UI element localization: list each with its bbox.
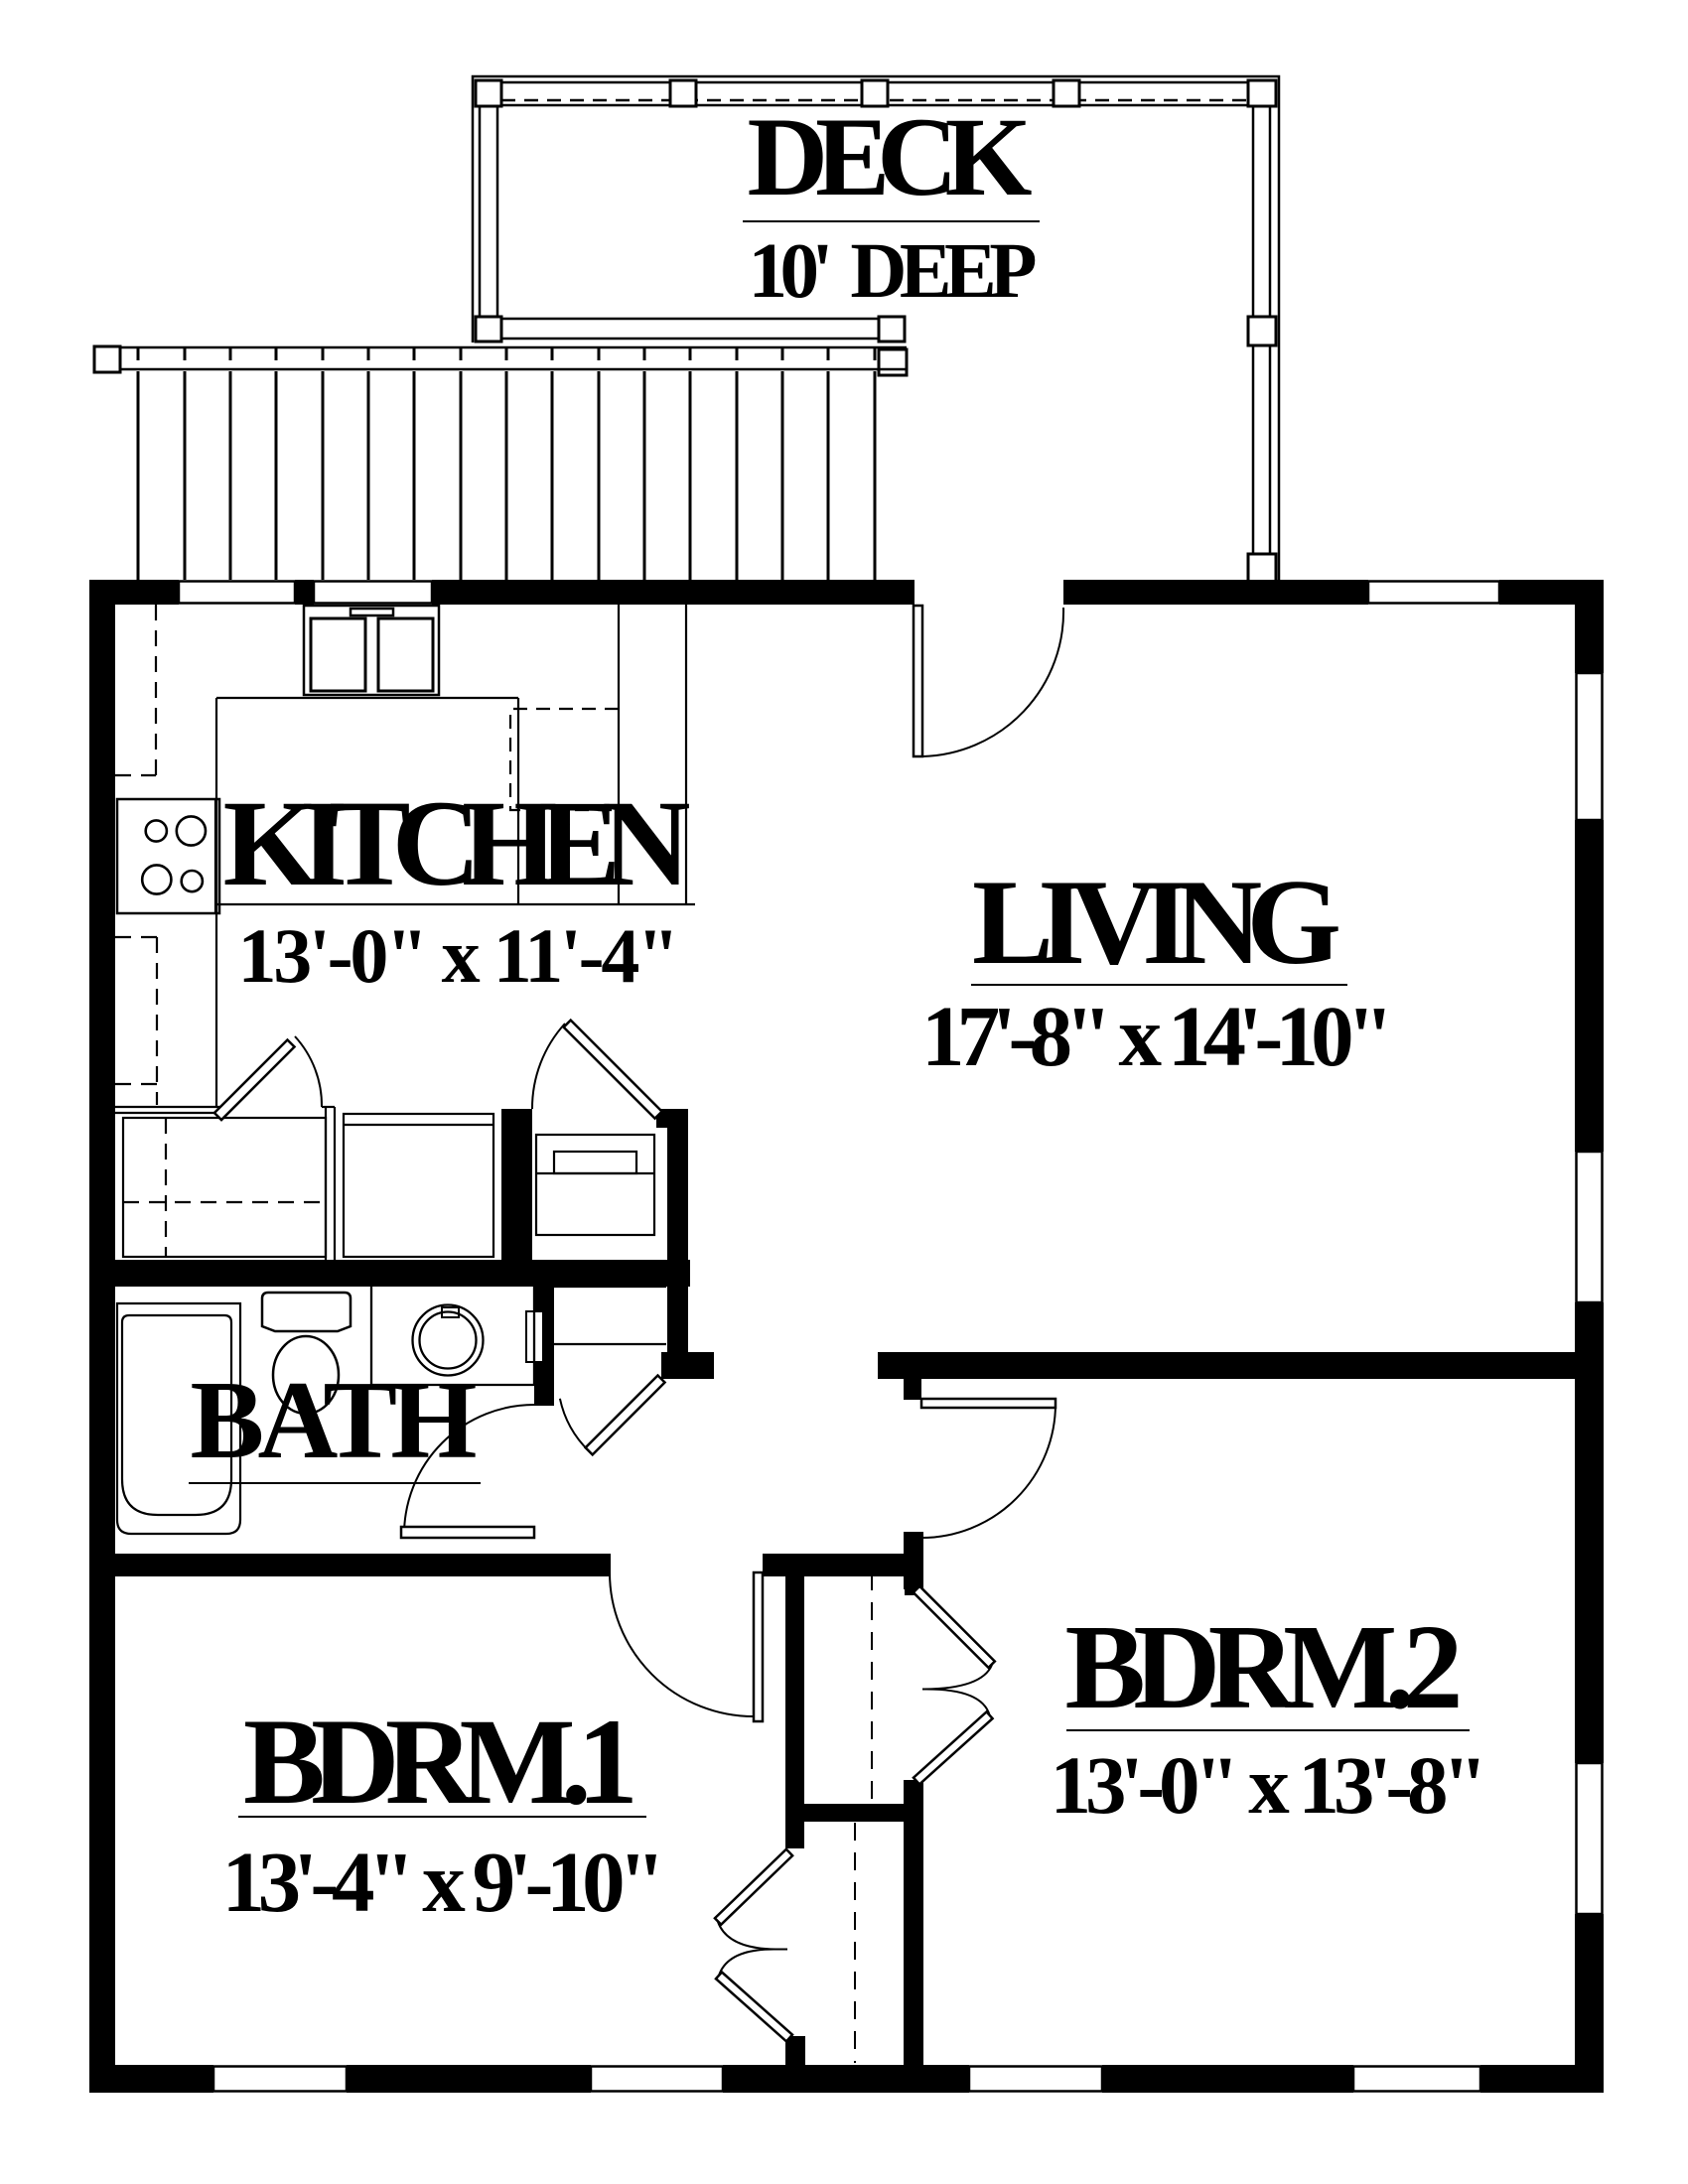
svg-text:BATH: BATH [191,1359,478,1482]
svg-text:10' DEEP: 10' DEEP [749,228,1038,315]
svg-text:17'-8" x 14'-10": 17'-8" x 14'-10" [921,988,1394,1084]
svg-text:KITCHEN: KITCHEN [223,775,691,911]
svg-text:LIVING: LIVING [972,854,1341,990]
svg-text:BDRM.2: BDRM.2 [1065,1600,1464,1734]
svg-text:13'-0" x 11'-4": 13'-0" x 11'-4" [238,912,680,999]
svg-text:13'-0" x 13'-8": 13'-0" x 13'-8" [1051,1739,1488,1831]
svg-text:13'-4" x 9'-10": 13'-4" x 9'-10" [222,1834,666,1930]
svg-text:BDRM.1: BDRM.1 [243,1694,638,1830]
svg-text:DECK: DECK [748,95,1033,219]
